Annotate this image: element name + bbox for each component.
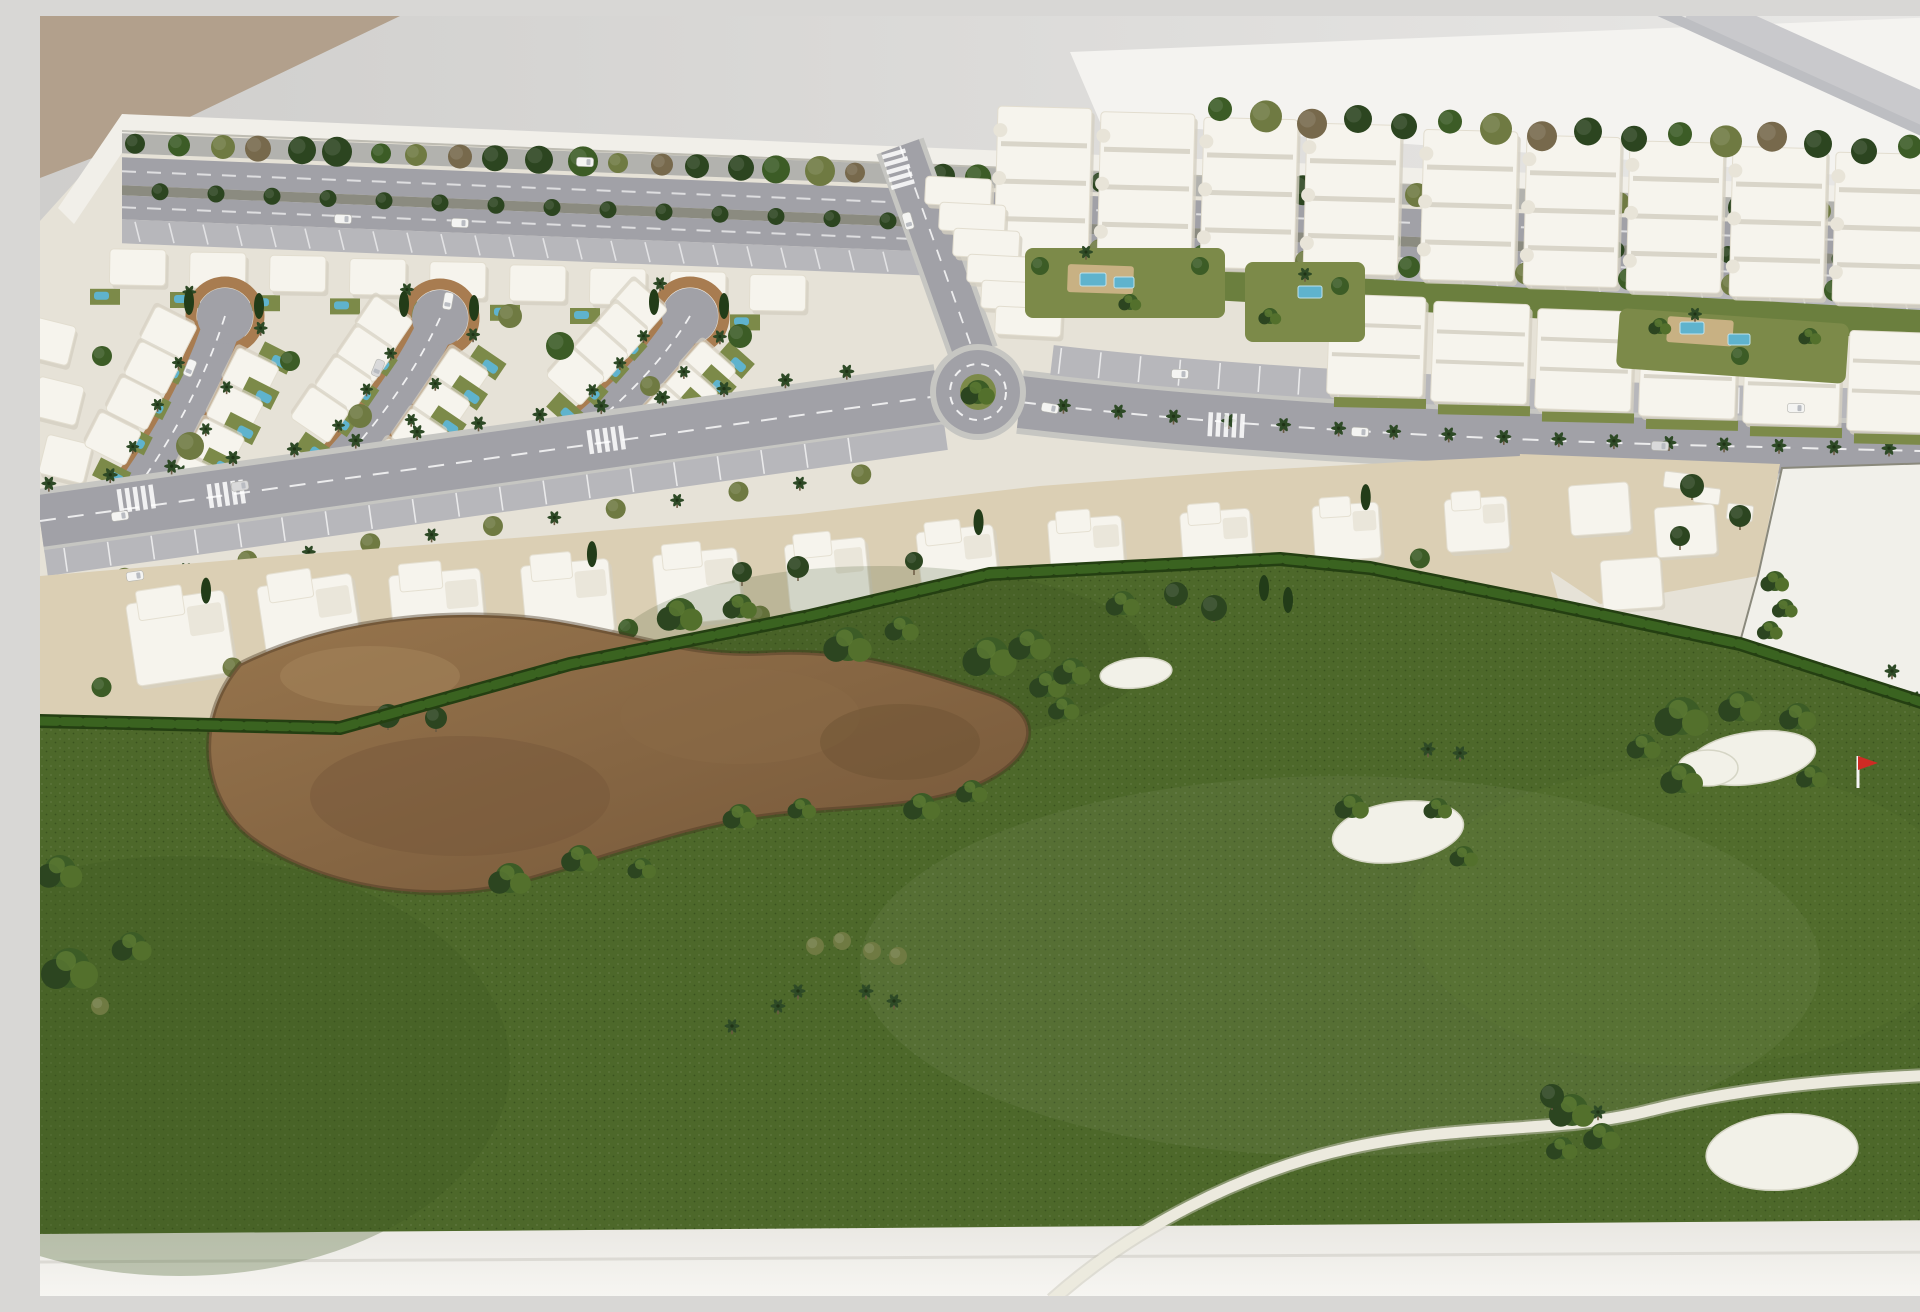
- cypress-icon: [469, 295, 479, 321]
- model-car-icon: [1651, 441, 1668, 451]
- model-building: [269, 255, 329, 296]
- cypress-icon: [1283, 587, 1293, 613]
- model-building: [1299, 123, 1404, 280]
- model-building: [1430, 301, 1533, 408]
- model-building: [749, 274, 809, 315]
- model-building: [1828, 152, 1920, 309]
- model-building: [349, 258, 409, 299]
- model-building: [1416, 129, 1521, 286]
- model-building: [1519, 135, 1624, 292]
- villa-cluster: [1568, 482, 1634, 539]
- model-building: [1846, 330, 1920, 437]
- model-car-icon: [1171, 369, 1188, 379]
- townhouse-cluster: [1311, 494, 1385, 566]
- model-building: [1725, 146, 1830, 303]
- cypress-icon: [587, 541, 597, 567]
- cypress-icon: [201, 578, 211, 604]
- model-car-icon: [1351, 427, 1368, 437]
- townhouse-cluster: [124, 578, 239, 690]
- model-car-icon: [1787, 403, 1804, 413]
- cypress-icon: [184, 289, 194, 315]
- cypress-icon: [254, 293, 264, 319]
- cypress-icon: [1361, 484, 1371, 510]
- model-car-icon: [334, 214, 351, 224]
- model-building: [1093, 112, 1198, 269]
- model-car-icon: [231, 480, 249, 491]
- swimming-pool: [1728, 334, 1750, 345]
- roundabout: [930, 344, 1026, 440]
- model-building: [1622, 141, 1727, 298]
- model-building: [109, 249, 169, 290]
- villa-cluster: [1600, 557, 1666, 614]
- swimming-pool: [1080, 273, 1106, 286]
- cypress-icon: [399, 291, 409, 317]
- scale-model-photo: Architectural scale model photograph: re…: [40, 16, 1920, 1296]
- model-building: [509, 265, 569, 306]
- cypress-icon: [974, 509, 984, 535]
- swimming-pool: [1680, 322, 1704, 334]
- model-scene: [40, 16, 1920, 1296]
- swimming-pool: [1114, 277, 1134, 288]
- model-car-icon: [126, 570, 144, 581]
- swimming-pool: [1298, 286, 1322, 298]
- cypress-icon: [719, 293, 729, 319]
- cypress-icon: [1259, 575, 1269, 601]
- model-car-icon: [111, 510, 129, 521]
- cypress-icon: [649, 289, 659, 315]
- townhouse-cluster: [1443, 488, 1513, 556]
- model-car-icon: [451, 218, 468, 228]
- model-car-icon: [576, 157, 593, 167]
